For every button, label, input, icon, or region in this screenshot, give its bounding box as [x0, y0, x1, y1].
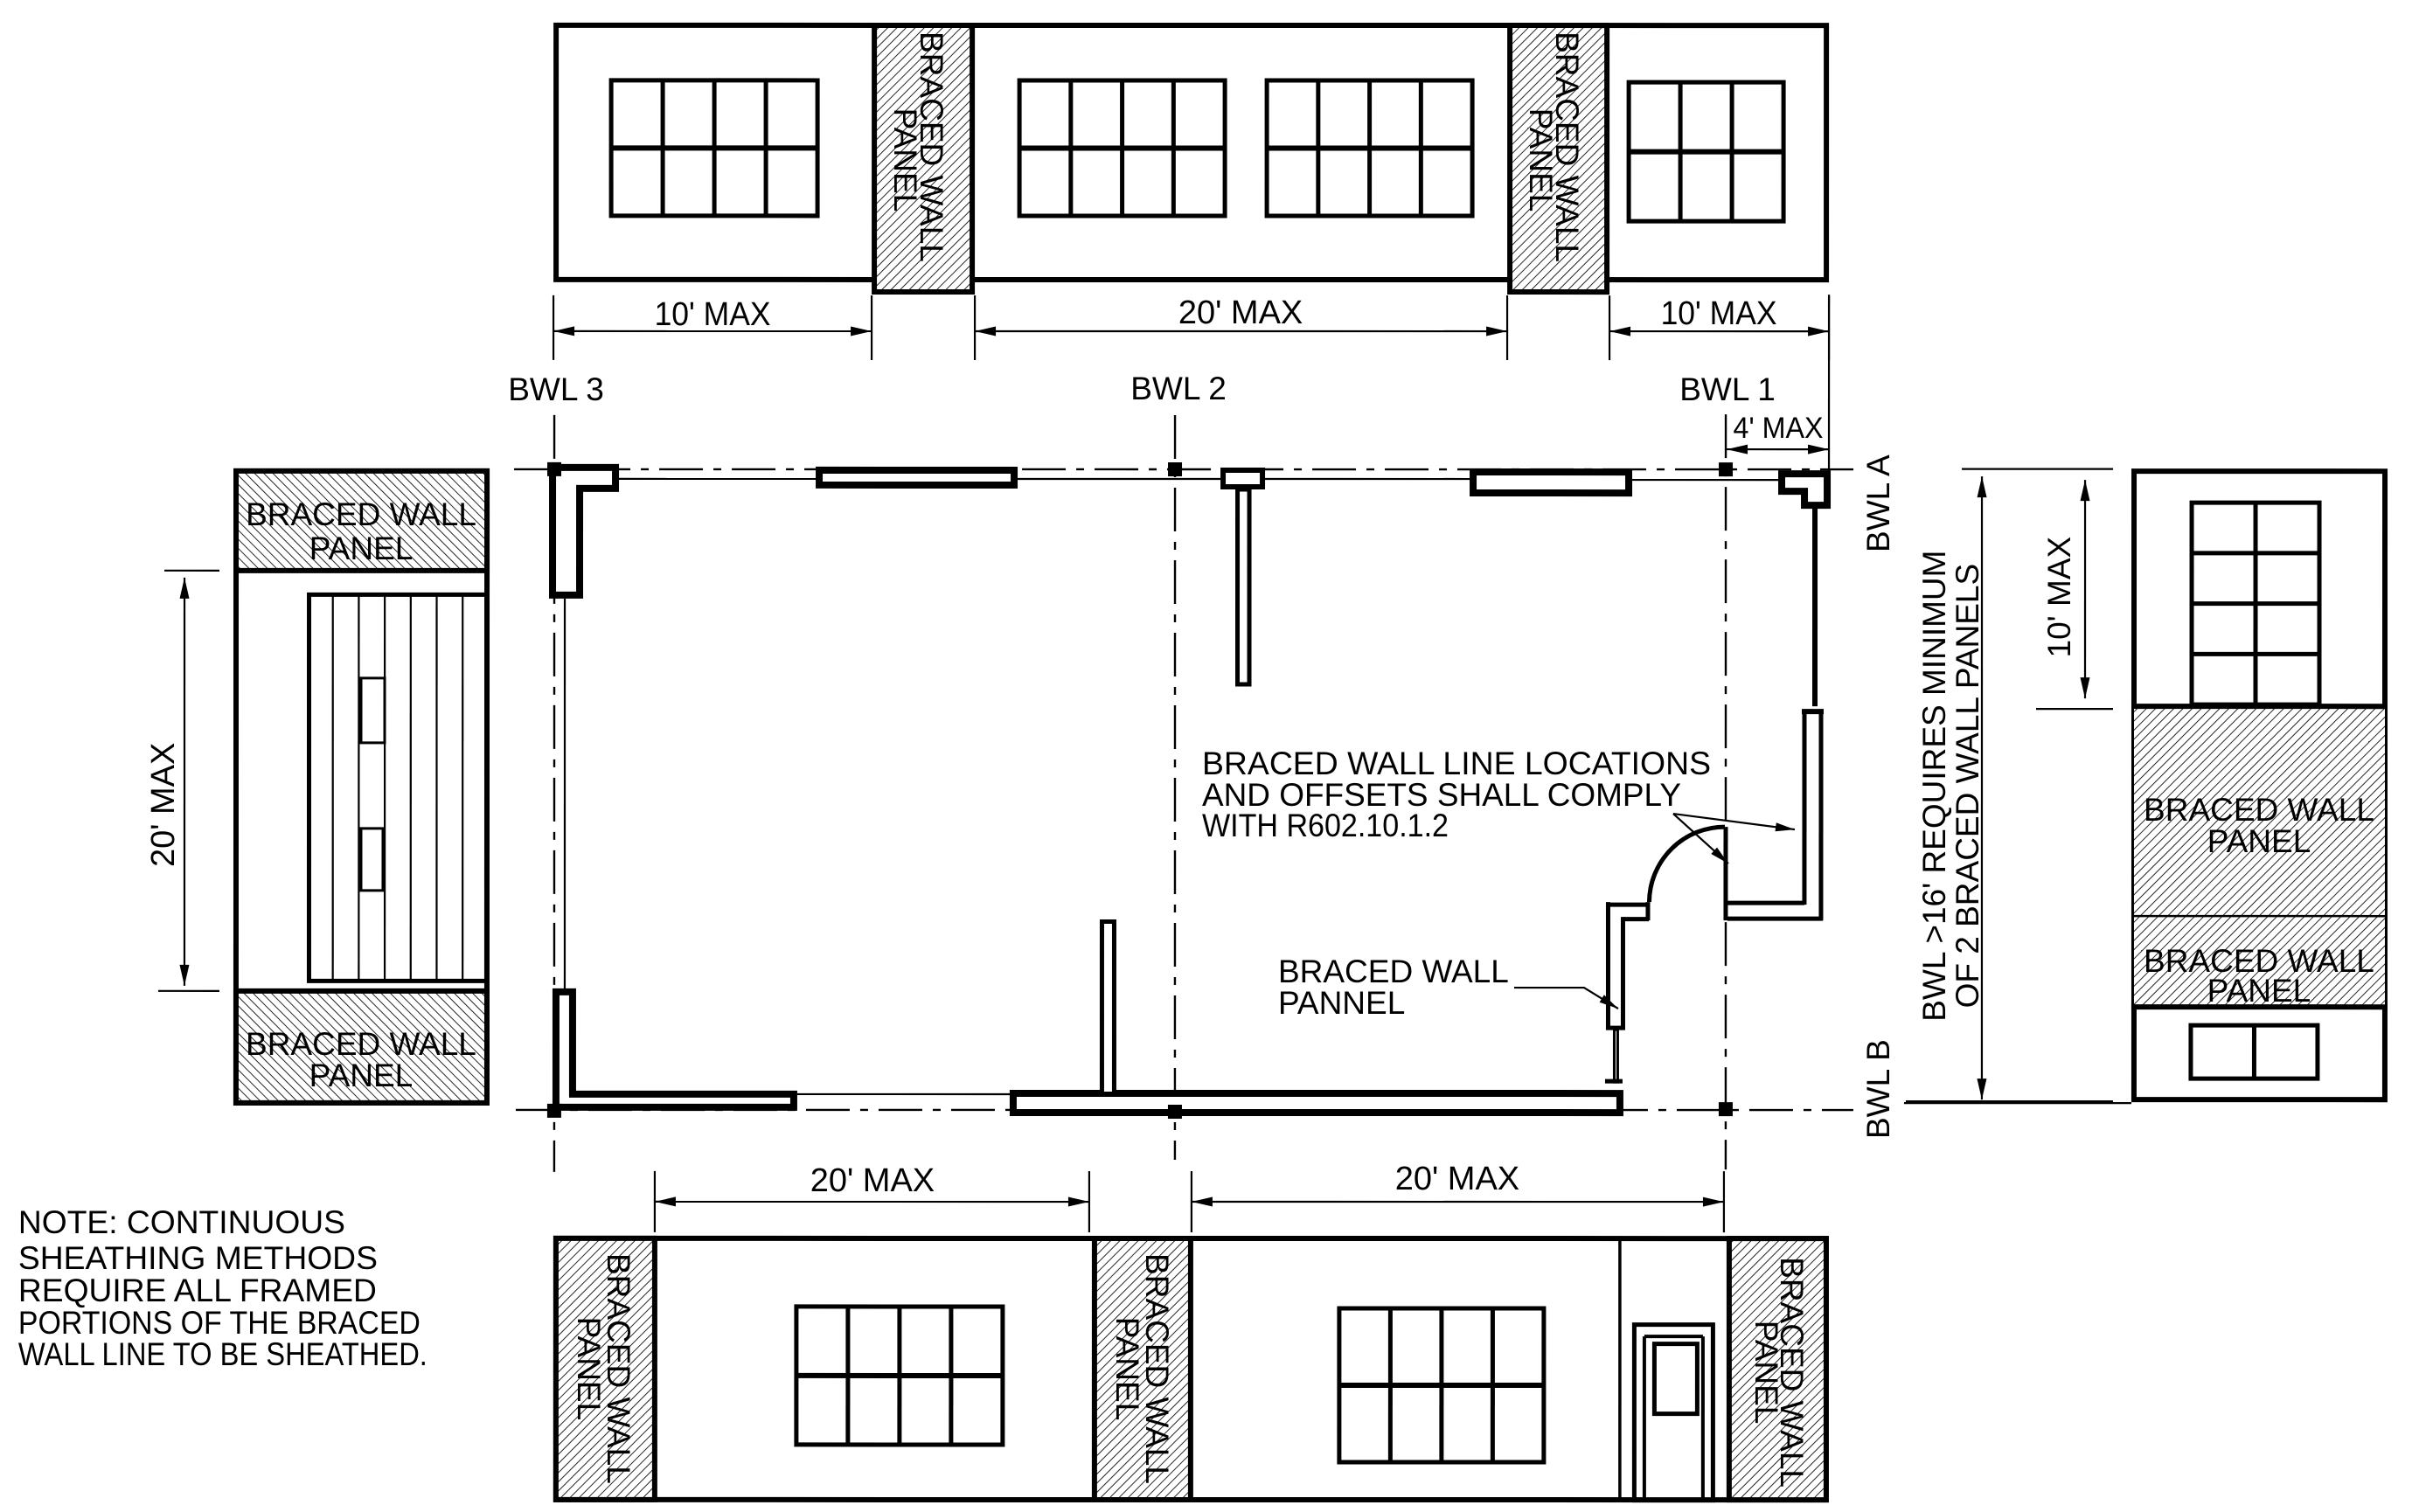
- svg-text:10' MAX: 10' MAX: [1661, 295, 1777, 332]
- svg-text:PANEL: PANEL: [571, 1317, 607, 1421]
- svg-text:20' MAX: 20' MAX: [810, 1162, 935, 1199]
- svg-text:PANEL: PANEL: [1523, 108, 1559, 212]
- svg-text:PANEL: PANEL: [1748, 1321, 1784, 1425]
- svg-text:BWL B: BWL B: [1860, 1039, 1896, 1139]
- svg-text:PANEL: PANEL: [309, 531, 414, 566]
- svg-text:20' MAX: 20' MAX: [1395, 1161, 1519, 1197]
- svg-text:BRACED WALL: BRACED WALL: [2144, 792, 2374, 828]
- svg-text:WITH R602.10.1.2: WITH R602.10.1.2: [1202, 808, 1449, 843]
- svg-text:SHEATHING METHODS: SHEATHING METHODS: [18, 1240, 378, 1276]
- svg-text:REQUIRE ALL FRAMED: REQUIRE ALL FRAMED: [18, 1273, 377, 1308]
- svg-text:BRACED WALL: BRACED WALL: [1278, 954, 1509, 989]
- svg-text:4' MAX: 4' MAX: [1734, 412, 1824, 445]
- svg-text:BRACED WALL LINE LOCATIONS: BRACED WALL LINE LOCATIONS: [1202, 746, 1711, 781]
- svg-text:PANNEL: PANNEL: [1278, 985, 1405, 1021]
- svg-text:BRACED WALL: BRACED WALL: [246, 1026, 476, 1062]
- svg-text:BWL A: BWL A: [1860, 454, 1896, 552]
- svg-text:20' MAX: 20' MAX: [145, 743, 182, 867]
- svg-text:PANEL: PANEL: [2207, 823, 2311, 859]
- svg-text:PANEL: PANEL: [1109, 1317, 1145, 1421]
- svg-text:PANEL: PANEL: [309, 1058, 414, 1093]
- svg-text:NOTE: CONTINUOUS: NOTE: CONTINUOUS: [18, 1204, 345, 1240]
- svg-text:BWL 2: BWL 2: [1130, 371, 1227, 406]
- svg-text:10' MAX: 10' MAX: [2041, 537, 2077, 658]
- svg-text:PANEL: PANEL: [887, 108, 923, 212]
- svg-text:PANEL: PANEL: [2207, 973, 2311, 1009]
- svg-text:20' MAX: 20' MAX: [1178, 295, 1303, 331]
- svg-text:WALL LINE TO BE SHEATHED.: WALL LINE TO BE SHEATHED.: [18, 1336, 427, 1372]
- svg-text:PORTIONS OF THE BRACED: PORTIONS OF THE BRACED: [18, 1305, 421, 1341]
- svg-text:10' MAX: 10' MAX: [655, 296, 771, 333]
- svg-text:BWL >16' REQUIRES MINIMUM: BWL >16' REQUIRES MINIMUM: [1916, 551, 1952, 1022]
- svg-text:BRACED WALL: BRACED WALL: [246, 496, 476, 532]
- svg-text:OF 2 BRACED WALL PANELS: OF 2 BRACED WALL PANELS: [1950, 564, 1985, 1009]
- svg-text:BWL 3: BWL 3: [508, 371, 604, 407]
- svg-text:BWL 1: BWL 1: [1679, 371, 1776, 407]
